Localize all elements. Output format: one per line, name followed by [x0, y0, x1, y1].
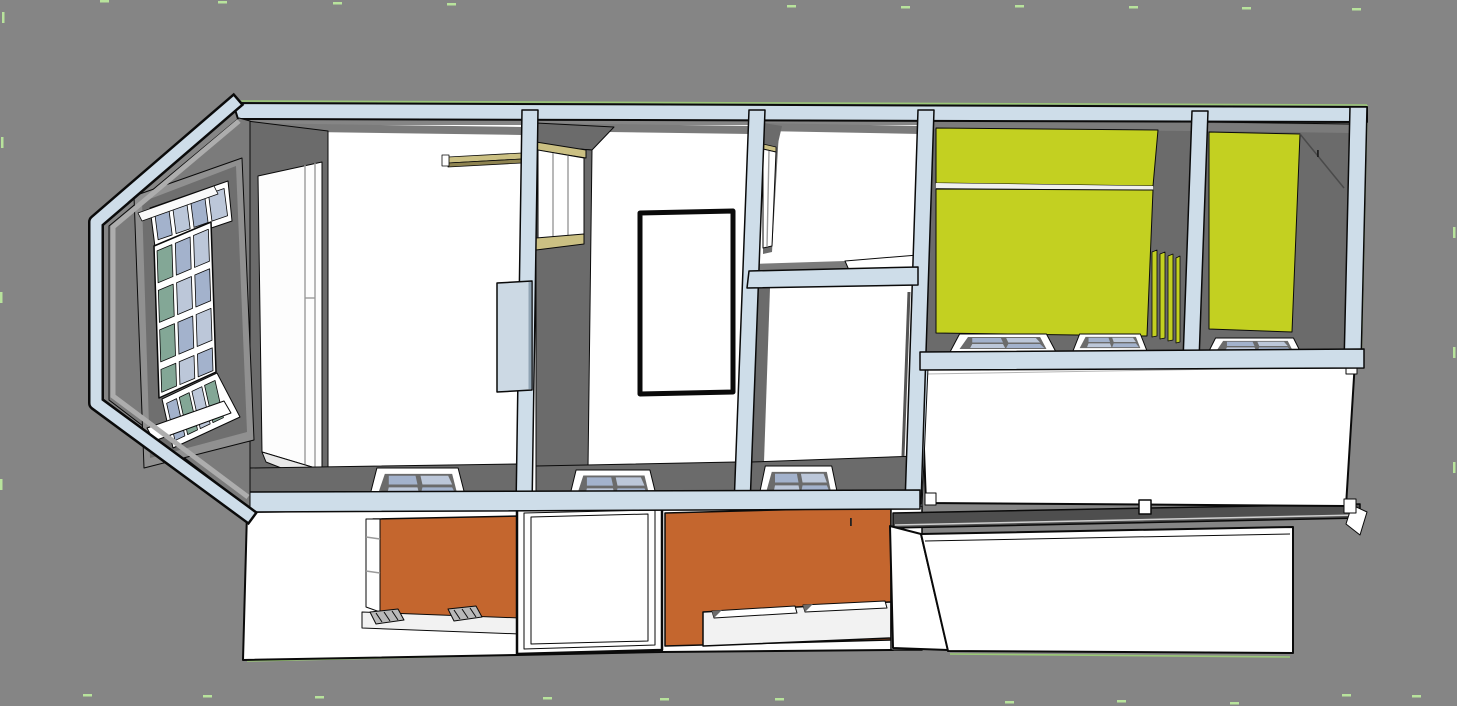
glass-pane: [178, 316, 194, 354]
floor-window-yellow-a: [950, 334, 1056, 352]
guide-tick: [775, 698, 784, 701]
guide-tick: [203, 695, 212, 698]
interior-window-glass: [538, 150, 584, 240]
room-bottom-middle: [736, 281, 920, 501]
glass-pane: [175, 237, 191, 275]
slat: [1168, 254, 1173, 341]
guide-tick: [0, 479, 3, 490]
door-frame-outer: [517, 505, 662, 654]
window-jamb: [366, 519, 380, 612]
guide-tick: [315, 696, 324, 699]
guide-tick: [1412, 695, 1421, 698]
room-top-middle: [748, 123, 920, 281]
roof-post: [1139, 500, 1151, 514]
slat: [1152, 250, 1157, 337]
glass-pane: [157, 245, 173, 283]
south-wall-band-west: [243, 490, 920, 512]
guide-tick: [1453, 347, 1456, 358]
guide-tick: [1342, 694, 1351, 697]
roof-post: [925, 493, 936, 505]
yellow-floor: [1209, 132, 1300, 332]
guide-tick: [787, 5, 796, 8]
facade-door-opening: [517, 505, 662, 654]
guide-tick: [1230, 702, 1239, 705]
beam-end-cap: [442, 155, 449, 166]
guide-tick: [1005, 701, 1014, 704]
guide-tick: [1453, 227, 1456, 238]
window-panes: [157, 229, 213, 392]
open-door-leaf: [640, 211, 733, 394]
guide-tick: [2, 12, 5, 23]
floor-window-yellow-b: [1073, 334, 1147, 351]
bay-main-window: [154, 222, 216, 398]
guide-tick: [83, 694, 92, 697]
slat: [1160, 252, 1165, 339]
guide-tick: [1, 137, 4, 148]
guide-tick: [333, 2, 342, 5]
yellow-room-right: [1197, 122, 1352, 355]
glass-pane: [194, 229, 210, 267]
guide-tick: [1242, 7, 1251, 10]
model-viewport[interactable]: [0, 0, 1457, 706]
guide-tick: [1015, 5, 1024, 8]
guide-tick: [660, 698, 669, 701]
hall-room: [530, 123, 751, 503]
glass-pane: [195, 269, 211, 307]
guide-tick: [1453, 462, 1456, 473]
flat-roof-wing: [911, 361, 1357, 514]
guide-tick: [100, 0, 109, 3]
south-wall-band-east: [920, 349, 1364, 370]
guide-tick: [218, 1, 227, 4]
guide-tick: [1129, 6, 1138, 9]
guide-tick: [901, 6, 910, 9]
facade-orange-left: [373, 516, 520, 622]
bay-opening-back: [258, 162, 322, 470]
slat: [1176, 256, 1180, 343]
guide-tick: [543, 697, 552, 700]
extension-front-face: [921, 527, 1293, 653]
guide-tick: [1352, 8, 1361, 11]
interior-wall-band-h: [747, 267, 918, 288]
stray-mark: [1317, 150, 1319, 157]
living-room: [247, 121, 524, 503]
glass-pane: [177, 276, 193, 314]
glass-pane: [158, 284, 174, 322]
guide-tick: [1117, 700, 1126, 703]
yellow-main-wall: [936, 189, 1153, 336]
glass-pane: [160, 324, 176, 362]
stray-mark: [850, 518, 852, 526]
model-scene: [0, 0, 1457, 706]
guide-tick: [0, 292, 3, 303]
roof-surface: [921, 361, 1355, 506]
yellow-room-left: [920, 121, 1194, 353]
yellow-upper-wall: [936, 128, 1158, 186]
glass-pane: [196, 308, 212, 346]
roof-post: [1344, 499, 1356, 513]
guide-tick: [447, 3, 456, 6]
fireplace-box: [497, 281, 532, 392]
